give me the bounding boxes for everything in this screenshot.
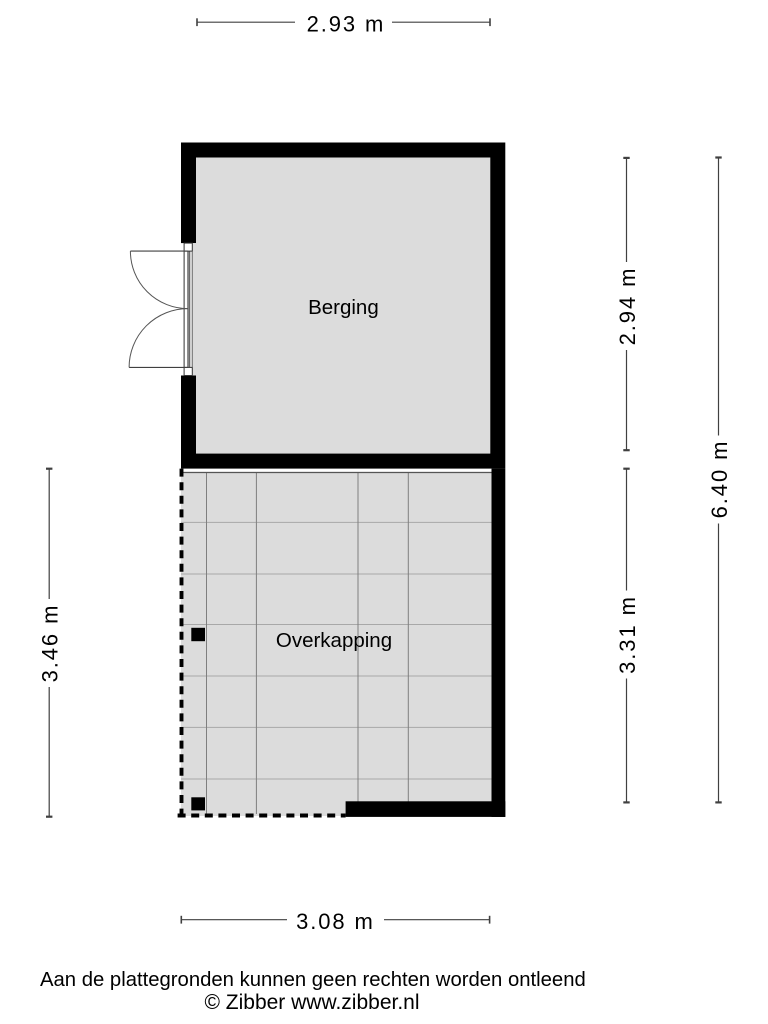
- svg-text:© Zibber www.zibber.nl: © Zibber www.zibber.nl: [204, 991, 419, 1014]
- svg-text:3.46 m: 3.46 m: [37, 604, 62, 683]
- svg-text:Aan de plattegronden kunnen ge: Aan de plattegronden kunnen geen rechten…: [40, 969, 586, 991]
- svg-text:2.94 m: 2.94 m: [615, 267, 640, 346]
- svg-text:3.08 m: 3.08 m: [296, 909, 375, 934]
- svg-text:6.40 m: 6.40 m: [707, 440, 732, 519]
- svg-text:Berging: Berging: [308, 296, 379, 319]
- svg-text:2.93 m: 2.93 m: [307, 11, 386, 36]
- svg-text:Overkapping: Overkapping: [276, 629, 392, 652]
- svg-text:3.31 m: 3.31 m: [615, 595, 640, 674]
